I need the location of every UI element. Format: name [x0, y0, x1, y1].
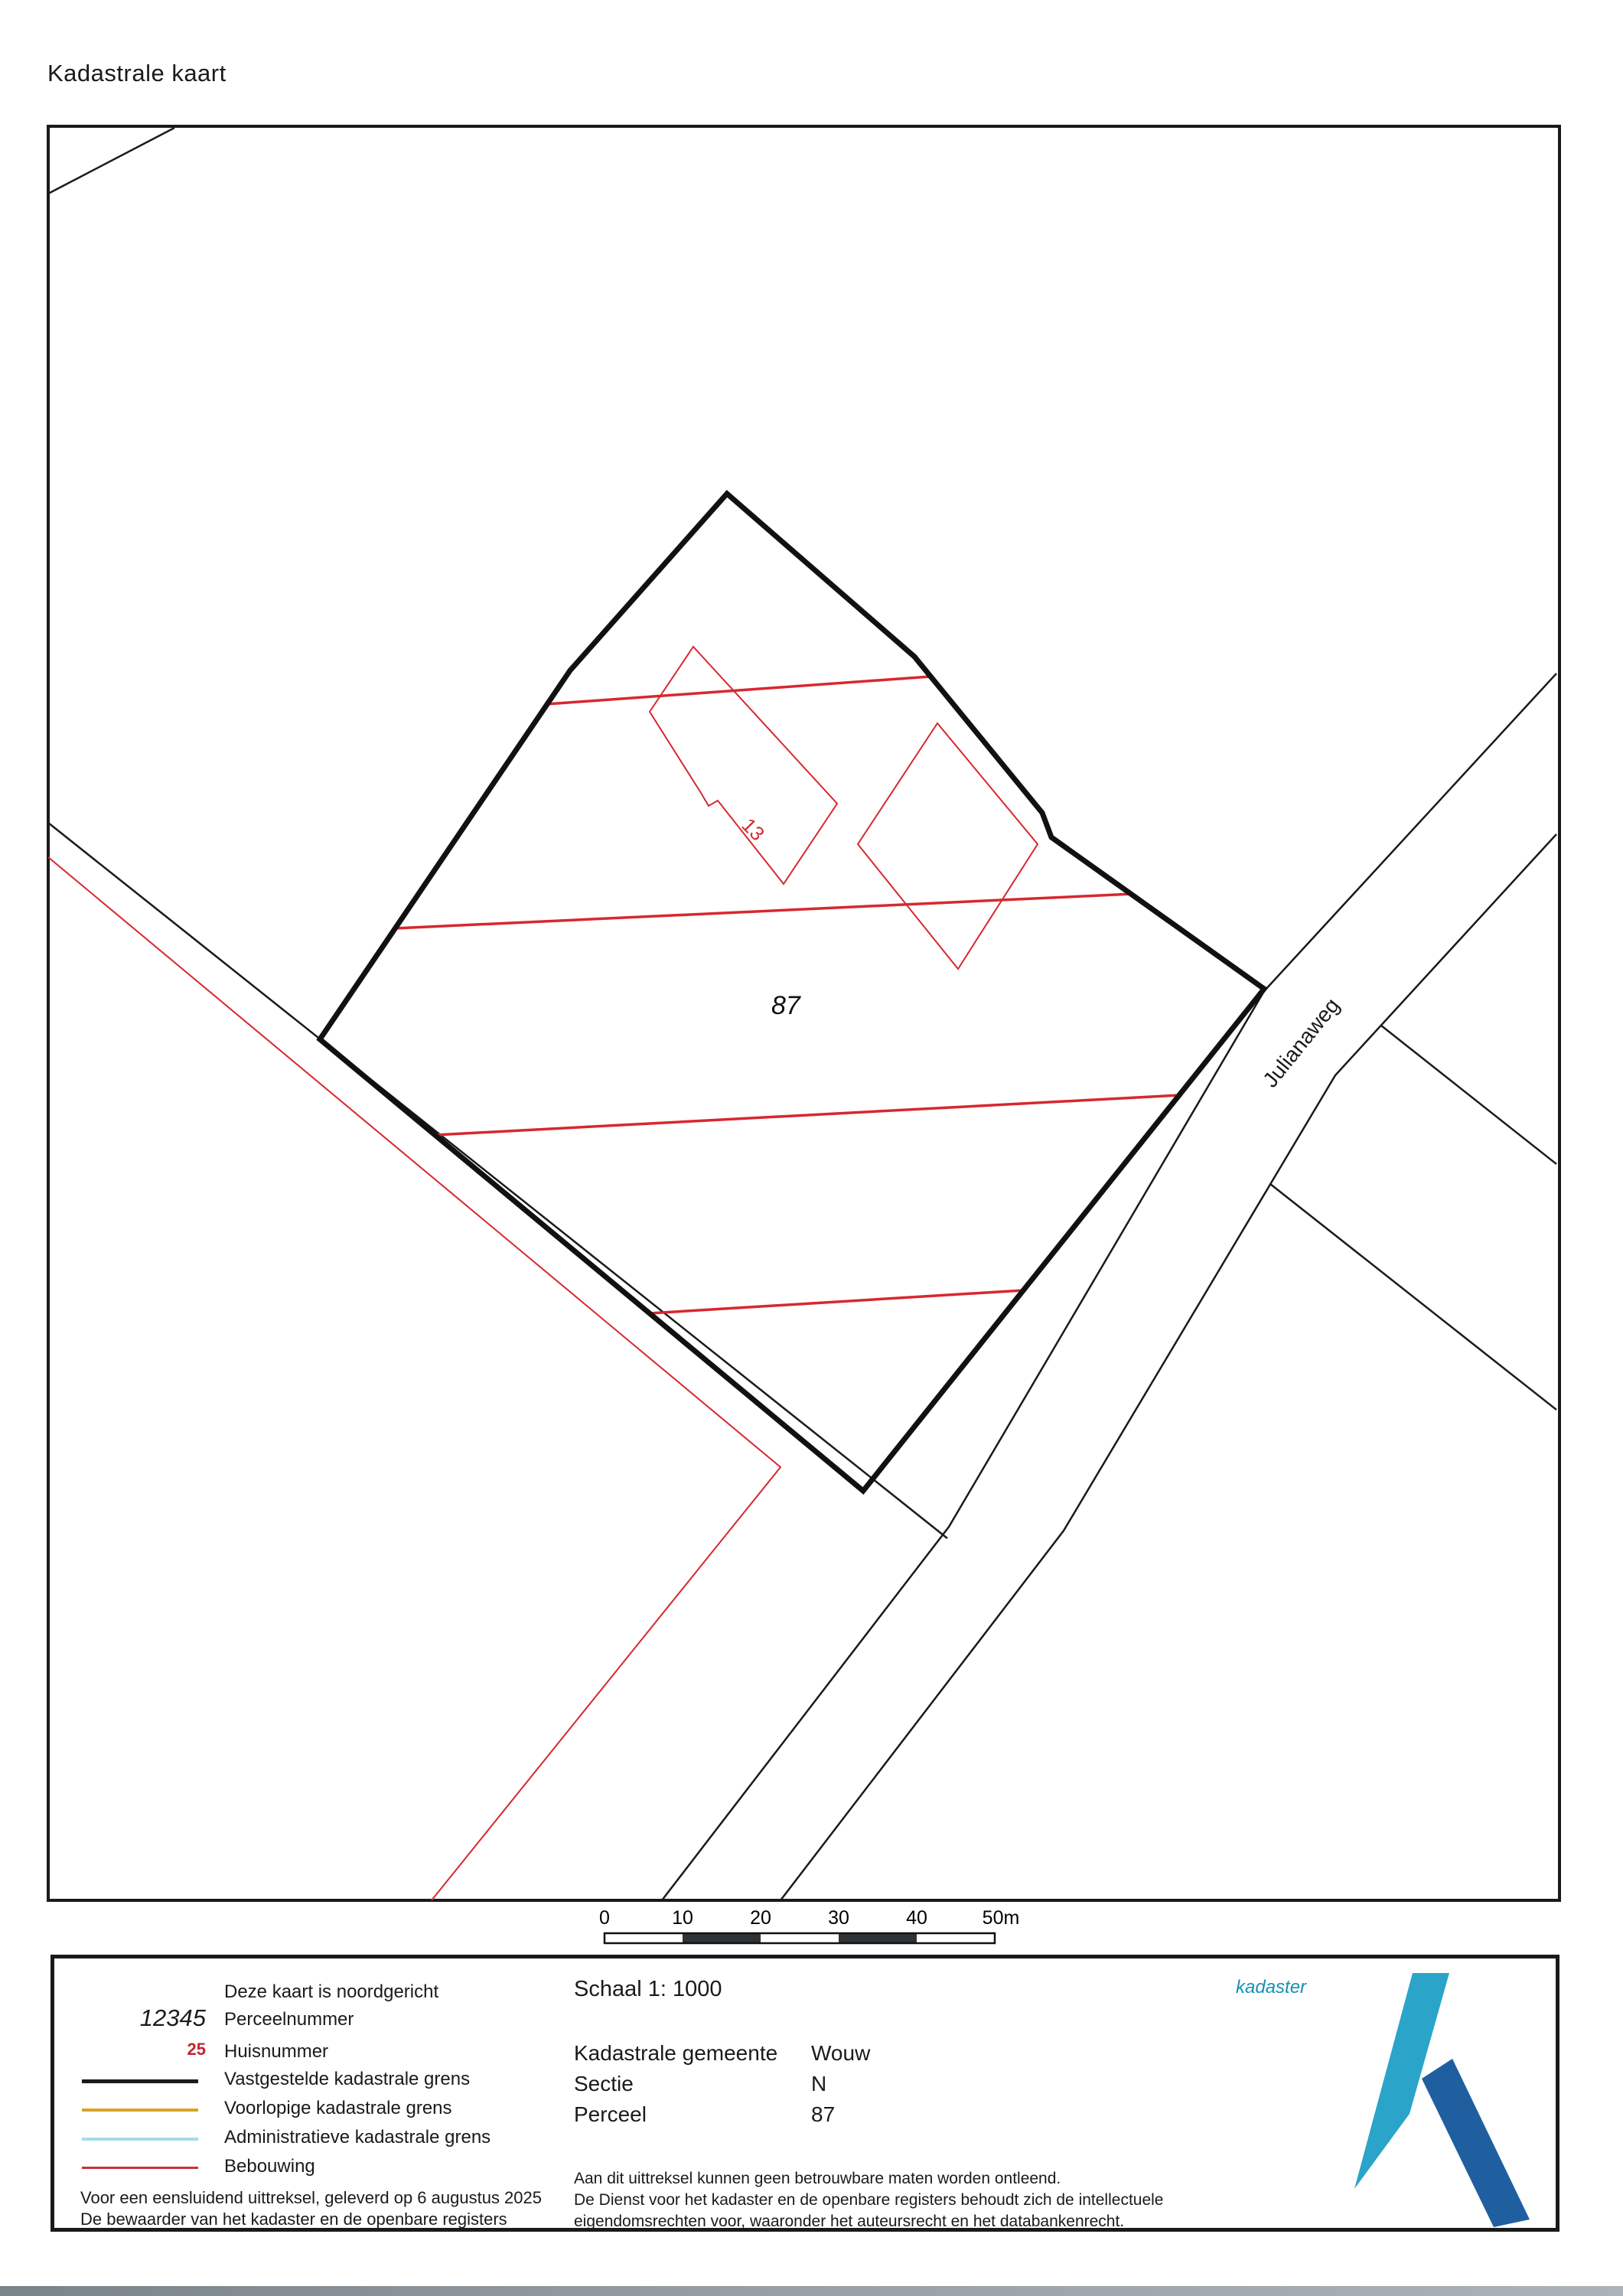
scale-bar: 0 10 20 30 40 50m — [599, 1907, 1019, 1943]
bebouwing-line-4 — [650, 1290, 1023, 1313]
scale-tick-50m: 50m — [983, 1907, 1020, 1929]
bebouwing-line-2 — [395, 894, 1133, 928]
bebouwing-line-3 — [435, 1095, 1179, 1135]
parcel-number-label: 87 — [771, 991, 801, 1020]
scale-tick-0: 0 — [599, 1907, 610, 1929]
julianaweg-far-edge — [781, 834, 1556, 1900]
municipality-value: Wouw — [811, 2041, 870, 2066]
disclaimer-line1: Aan dit uittreksel kunnen geen betrouwba… — [574, 2170, 1061, 2188]
north-note: Deze kaart is noordgericht — [224, 1981, 438, 2003]
east-branch-boundary-2 — [1270, 1184, 1556, 1410]
scan-edge-strip — [0, 2286, 1623, 2296]
municipality-label: Kadastrale gemeente — [574, 2041, 777, 2066]
page-title: Kadastrale kaart — [47, 60, 227, 87]
administrative-boundary-swatch — [82, 2138, 198, 2141]
julianaweg-near-edge — [662, 673, 1556, 1900]
house-number-sample: 25 — [145, 2040, 206, 2060]
road-edge-west — [48, 823, 947, 1538]
east-branch-boundary-1 — [1381, 1026, 1556, 1164]
building-legend-swatch — [82, 2167, 198, 2169]
house-number-legend-label: Huisnummer — [224, 2041, 328, 2063]
building-outline-house13 — [650, 647, 837, 884]
parcel-row-label: Perceel — [574, 2102, 647, 2127]
parcel-row-value: 87 — [811, 2102, 835, 2127]
scale-bar-dark-segment-2 — [839, 1933, 917, 1943]
scale-text: Schaal 1: 1000 — [574, 1977, 722, 2002]
cadastral-map-canvas: 87 13 Julianaweg 0 10 20 30 40 50m — [0, 0, 1623, 2296]
building-outline-barn — [858, 723, 1038, 969]
house-number-label: 13 — [738, 814, 770, 846]
map-corner-boundary-line — [48, 128, 174, 194]
disclaimer-line2: De Dienst voor het kadaster en de openba… — [574, 2191, 1163, 2210]
scale-bar-outline — [605, 1933, 995, 1943]
bebouwing-line-1 — [547, 677, 930, 704]
established-boundary-swatch — [82, 2079, 198, 2083]
parcel-87-boundary — [320, 494, 1264, 1491]
disclaimer-line3: eigendomsrechten voor, waaronder het aut… — [574, 2213, 1124, 2231]
kadastrale-kaart-page: Kadastrale kaart 87 13 Julianaweg 0 10 — [0, 0, 1623, 2296]
scale-tick-30: 30 — [828, 1907, 849, 1929]
scale-tick-40: 40 — [906, 1907, 927, 1929]
scale-bar-dark-segment-1 — [683, 1933, 761, 1943]
map-frame — [48, 126, 1559, 1900]
red-road-parallel-line — [48, 857, 781, 1900]
building-legend-label: Bebouwing — [224, 2156, 315, 2177]
administrative-boundary-label: Administratieve kadastrale grens — [224, 2127, 490, 2148]
scale-tick-20: 20 — [750, 1907, 771, 1929]
section-label: Sectie — [574, 2072, 634, 2096]
street-name-label: Julianaweg — [1258, 993, 1344, 1091]
section-value: N — [811, 2072, 826, 2096]
scale-tick-10: 10 — [672, 1907, 693, 1929]
legend-box: Deze kaart is noordgericht 12345 Perceel… — [51, 1955, 1559, 2232]
parcel-number-sample: 12345 — [122, 2004, 206, 2032]
parcel-number-legend-label: Perceelnummer — [224, 2009, 354, 2030]
issued-statement-line1: Voor een eensluidend uittreksel, gelever… — [80, 2188, 542, 2208]
established-boundary-label: Vastgestelde kadastrale grens — [224, 2069, 470, 2090]
provisional-boundary-swatch — [82, 2108, 198, 2112]
issued-statement-line2: De bewaarder van het kadaster en de open… — [80, 2210, 507, 2229]
provisional-boundary-label: Voorlopige kadastrale grens — [224, 2098, 452, 2119]
kadaster-logo-text: kadaster — [1236, 1977, 1306, 1998]
